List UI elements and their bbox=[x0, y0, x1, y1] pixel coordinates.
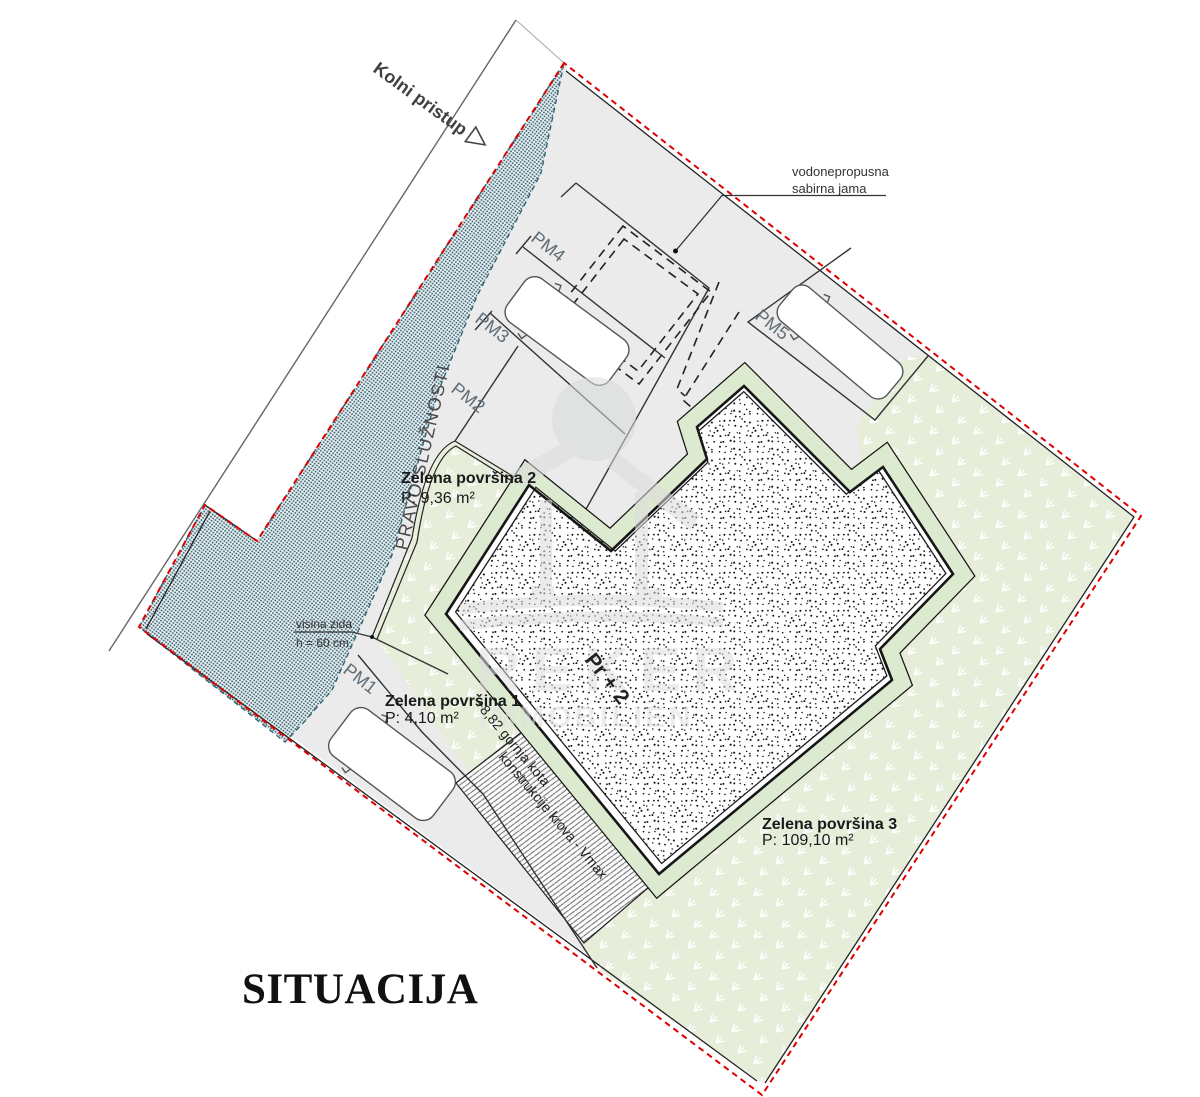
svg-text:P: 4,10 m²: P: 4,10 m² bbox=[385, 710, 459, 727]
svg-text:sabirna jama: sabirna jama bbox=[792, 181, 867, 196]
svg-text:visina zida: visina zida bbox=[296, 617, 352, 631]
svg-text:Zelena površina 3: Zelena površina 3 bbox=[762, 816, 897, 833]
svg-text:SITUACIJA: SITUACIJA bbox=[242, 966, 478, 1013]
svg-text:P: 9,36 m²: P: 9,36 m² bbox=[401, 490, 475, 507]
svg-text:Zelena površina 2: Zelena površina 2 bbox=[401, 470, 536, 487]
svg-text:P: 109,10 m²: P: 109,10 m² bbox=[762, 832, 854, 849]
svg-text:Zelena površina 1: Zelena površina 1 bbox=[385, 693, 520, 710]
svg-text:vodonepropusna: vodonepropusna bbox=[792, 164, 890, 179]
svg-text:h = 60 cm: h = 60 cm bbox=[296, 636, 349, 650]
